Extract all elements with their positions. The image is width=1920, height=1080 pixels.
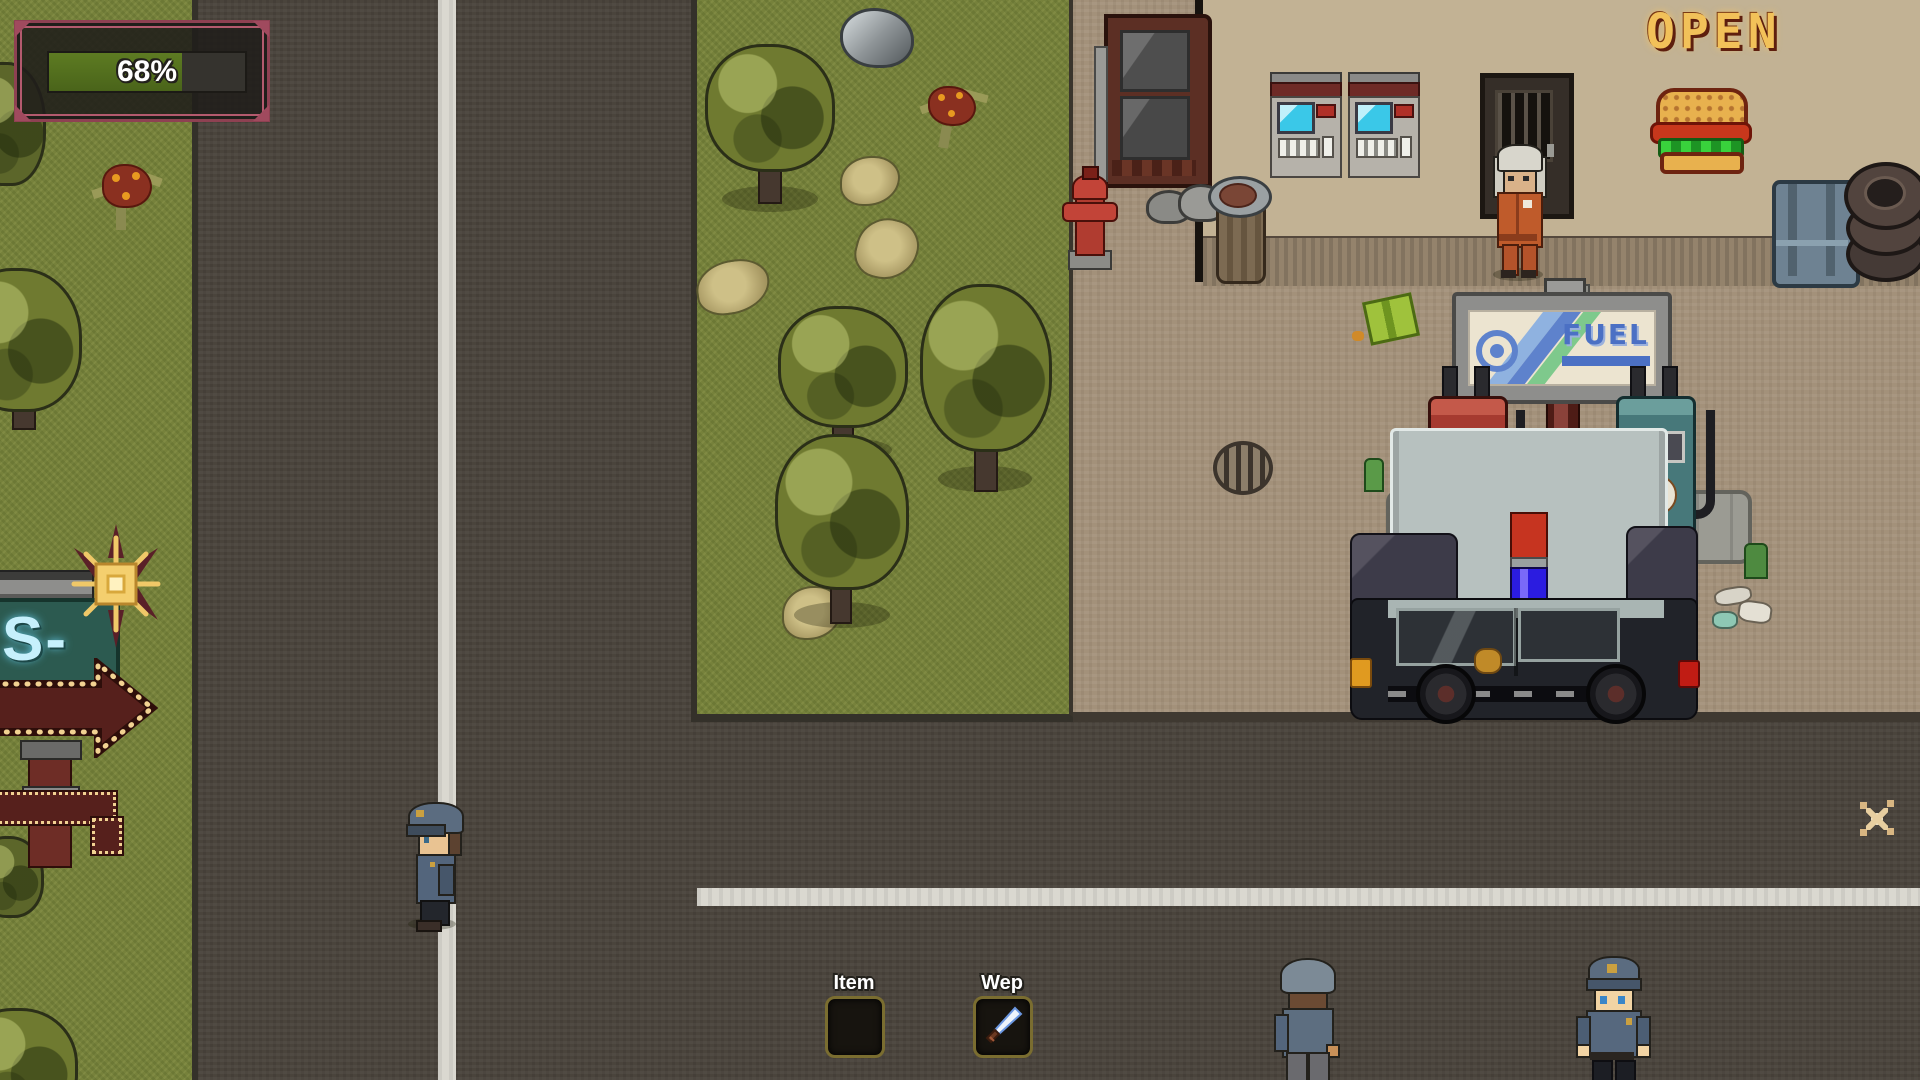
officer-cap-brim	[406, 824, 446, 837]
lower-stripe-bend	[92, 818, 122, 854]
arrow-sign	[0, 658, 158, 758]
red-flower-plant	[92, 160, 162, 230]
npc-name-patch	[1523, 200, 1532, 208]
bun-bottom	[1660, 152, 1744, 174]
officer-pants	[1592, 1060, 1613, 1080]
suitcase-strap	[1826, 184, 1835, 276]
officer-cap-badge	[1607, 964, 1617, 973]
sparkle-dot	[1887, 800, 1894, 807]
cabinet-window	[1120, 30, 1190, 92]
berry	[112, 174, 120, 182]
officer-eye	[424, 836, 429, 843]
npc-eyes	[1508, 176, 1514, 181]
berry	[132, 172, 140, 180]
tree-canopy	[920, 284, 1052, 452]
paper-debris	[1710, 585, 1780, 639]
officer-pants	[1308, 1052, 1330, 1080]
sparkle-pickup[interactable]	[1858, 800, 1896, 838]
debris	[1737, 599, 1774, 626]
wep-slot-label: Wep	[958, 972, 1046, 995]
hydrant-cap	[1082, 166, 1099, 180]
machine-screen	[1277, 102, 1315, 134]
hydrant-arms	[1062, 202, 1118, 222]
car-window	[1518, 608, 1620, 662]
machine-screen	[1355, 102, 1393, 134]
box	[1362, 292, 1420, 345]
item-slot[interactable]	[825, 996, 885, 1058]
vending-machine-1[interactable]	[1270, 72, 1342, 177]
officer-eye	[1600, 996, 1607, 1004]
roadside-sign: S-	[0, 524, 172, 864]
wheel	[1416, 664, 1476, 724]
machine-keypad	[1278, 138, 1320, 158]
can-lid-rust	[1219, 183, 1257, 208]
machine-buttons	[1394, 104, 1414, 118]
tree-canopy	[775, 434, 909, 590]
car-body	[1350, 598, 1698, 720]
panel-corner	[253, 21, 269, 37]
officer-belt	[1590, 1052, 1634, 1060]
starburst-ornament	[66, 524, 166, 648]
berry	[956, 92, 963, 99]
officer-cap	[1280, 958, 1336, 994]
headlight	[1350, 658, 1372, 688]
rock	[840, 8, 914, 68]
bloom	[102, 164, 152, 208]
cabinet-slats	[1112, 160, 1196, 176]
npc-hair-top	[1497, 144, 1543, 172]
red-flower-plant	[920, 84, 986, 140]
vending-machine-2[interactable]	[1348, 72, 1420, 177]
light-bar-red	[1510, 512, 1548, 561]
officer-hand	[1576, 1044, 1591, 1058]
cactus-icon	[1744, 543, 1768, 579]
npc-shoes	[1521, 270, 1536, 278]
police-car[interactable]	[1346, 425, 1698, 721]
officer-torso	[1586, 1010, 1642, 1058]
leaf	[116, 208, 126, 230]
officer-button	[430, 862, 435, 867]
cabinet-pipe	[1094, 46, 1108, 182]
panel-corner	[253, 105, 269, 121]
police-officer-front[interactable]	[1574, 956, 1650, 1080]
fire-hydrant	[1060, 170, 1118, 270]
wep-slot[interactable]	[973, 996, 1033, 1058]
road-center-line-horizontal	[697, 888, 1920, 906]
open-neon-sign: OPEN	[1646, 4, 1782, 60]
panel-corner	[15, 21, 31, 37]
manhole-grate	[1213, 441, 1273, 495]
officer-arm	[438, 864, 455, 896]
crumbs	[1352, 331, 1364, 341]
machine-slot	[1400, 136, 1412, 158]
officer-arm	[1274, 1014, 1289, 1052]
fuel-underline	[1562, 356, 1650, 366]
item-slot-label: Item	[810, 972, 898, 995]
game-viewport: S- OPEN	[0, 0, 1920, 1080]
knife-icon	[981, 1004, 1025, 1048]
sparkle-dot	[1887, 828, 1894, 835]
taillight	[1678, 660, 1700, 688]
fuel-sign-text: FUEL	[1562, 318, 1649, 351]
police-officer-back[interactable]	[1270, 958, 1340, 1080]
sparkle-arm	[1866, 808, 1888, 830]
tire-hole	[1864, 176, 1906, 210]
machine-slot	[1322, 136, 1334, 158]
rusty-cabinet	[1104, 14, 1212, 188]
green-box-pickup[interactable]	[1362, 295, 1416, 341]
npc-eyes	[1523, 176, 1529, 181]
officer-eye	[1618, 996, 1625, 1004]
tree-canopy	[778, 306, 908, 428]
machine-keypad	[1356, 138, 1398, 158]
officer-pants	[1615, 1060, 1636, 1080]
health-bar-panel: 68%	[14, 20, 270, 122]
station-attendant-npc[interactable]	[1483, 146, 1553, 282]
sparkle-dot	[1860, 829, 1867, 836]
machine-buttons	[1316, 104, 1336, 118]
officer-badge	[1626, 1018, 1632, 1025]
bloom	[928, 86, 976, 126]
debris	[1712, 611, 1738, 629]
emblem-dot	[1490, 344, 1504, 358]
npc-belt	[1499, 234, 1537, 241]
officer-cap-badge	[416, 810, 424, 817]
door-badge	[1474, 648, 1502, 674]
door-seam	[1514, 608, 1518, 676]
trash-can[interactable]	[1208, 176, 1270, 286]
officer-shoe	[416, 920, 442, 932]
npc-shoes	[1501, 270, 1516, 278]
health-bar-track: 68%	[47, 51, 247, 93]
tree-canopy	[705, 44, 835, 172]
health-bar-value: 68%	[49, 55, 245, 89]
suitcase-lid-line	[1776, 240, 1848, 246]
police-officer-walking[interactable]	[400, 802, 466, 932]
wheel	[1586, 664, 1646, 724]
berry	[938, 94, 945, 101]
suitcase-strap	[1788, 184, 1797, 276]
officer-cap-brim	[1586, 978, 1642, 991]
berry	[122, 192, 130, 200]
officer-hand	[1636, 1044, 1651, 1058]
cabinet-window	[1120, 96, 1190, 160]
panel-corner	[15, 105, 31, 121]
officer-pants	[1286, 1052, 1308, 1080]
burger-neon-icon	[1652, 86, 1748, 170]
berry	[948, 110, 955, 117]
tire-stack	[1844, 160, 1920, 282]
